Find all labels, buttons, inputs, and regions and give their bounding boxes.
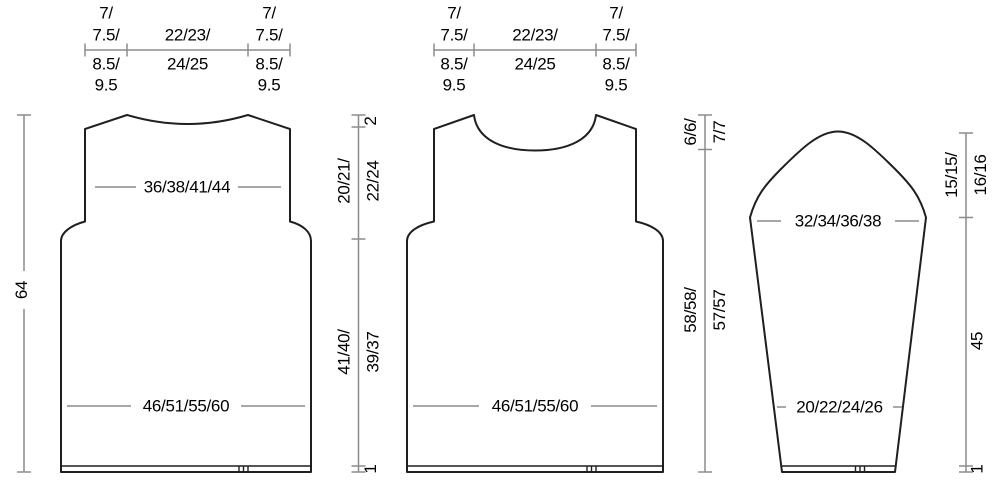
back-hem-width-label: 46/51/55/60 <box>143 397 230 416</box>
back-vertical-measure: 2 20/21/ 22/24 41/40/ 39/37 1 <box>335 115 383 474</box>
sleeve-cap-height-label-row2: 16/16 <box>971 154 990 195</box>
back-body-height-label-row2: 39/37 <box>364 331 383 372</box>
back-piece-outline <box>61 115 311 472</box>
front-piece-outline <box>407 115 663 472</box>
back-left-shoulder-label-row3: 8.5/ <box>92 55 120 74</box>
back-right-shoulder-label-row2: 7.5/ <box>255 26 283 45</box>
back-neck-width-label-row1: 22/23/ <box>165 26 211 45</box>
sleeve-cuff-rib-marks <box>856 467 865 472</box>
front-left-shoulder-label-row3: 8.5/ <box>440 55 468 74</box>
front-neck-depth-label-row2: 7/7 <box>710 121 729 144</box>
back-chest-measure: 36/38/41/44 <box>95 178 281 197</box>
back-left-shoulder-label-row1: 7/ <box>99 4 113 23</box>
sleeve-cuff-band-label: 1 <box>968 464 987 473</box>
front-right-shoulder-label-row1: 7/ <box>609 4 623 23</box>
back-armhole-label-row1: 20/21/ <box>335 158 354 204</box>
back-chest-width-label: 36/38/41/44 <box>144 178 231 197</box>
front-right-shoulder-label-row2: 7.5/ <box>602 26 630 45</box>
front-hem-width-label: 46/51/55/60 <box>492 397 579 416</box>
front-neck-width-label-row2: 24/25 <box>514 55 555 74</box>
back-right-shoulder-label-row4: 9.5 <box>258 76 281 95</box>
front-right-shoulder-label-row3: 8.5/ <box>602 55 630 74</box>
sleeve-piece: 32/34/36/38 20/22/24/26 15/15/ 16/16 45 … <box>750 132 990 474</box>
front-neck-depth-label-row1: 6/6/ <box>681 118 700 146</box>
sleeve-cap-height-label-row1: 15/15/ <box>942 152 961 198</box>
front-hem-measure: 46/51/55/60 <box>413 397 657 416</box>
front-top-measure-bar: 7/ 7.5/ 8.5/ 9.5 22/23/ 24/25 7/ 7.5/ 8.… <box>434 4 636 95</box>
front-left-shoulder-label-row2: 7.5/ <box>440 26 468 45</box>
front-neck-width-label-row1: 22/23/ <box>512 26 558 45</box>
back-right-shoulder-label-row1: 7/ <box>262 4 276 23</box>
schematic-canvas: 7/ 7.5/ 8.5/ 9.5 22/23/ 24/25 7/ 7.5/ 8.… <box>0 0 1000 491</box>
front-side-height-label-row1: 58/58/ <box>681 287 700 333</box>
back-hem-measure: 46/51/55/60 <box>67 397 305 416</box>
back-armhole-label-row2: 22/24 <box>364 160 383 201</box>
back-hem-band-label: 1 <box>361 464 380 473</box>
back-height-measure: 64 <box>12 115 31 472</box>
sleeve-upper-width-measure: 32/34/36/38 <box>757 212 919 231</box>
front-left-shoulder-label-row4: 9.5 <box>443 76 466 95</box>
back-hem-rib-marks <box>239 467 248 472</box>
back-top-measure-bar: 7/ 7.5/ 8.5/ 9.5 22/23/ 24/25 7/ 7.5/ 8.… <box>85 4 290 95</box>
sleeve-cuff-width-measure: 20/22/24/26 <box>777 398 902 417</box>
sleeve-cuff-width-label: 20/22/24/26 <box>796 398 883 417</box>
front-vertical-measure: 6/6/ 7/7 58/58/ 57/57 <box>681 115 729 472</box>
back-right-shoulder-label-row3: 8.5/ <box>255 55 283 74</box>
back-piece: 7/ 7.5/ 8.5/ 9.5 22/23/ 24/25 7/ 7.5/ 8.… <box>12 4 383 474</box>
sleeve-upper-width-label: 32/34/36/38 <box>795 212 882 231</box>
back-left-shoulder-label-row2: 7.5/ <box>92 26 120 45</box>
front-piece: 7/ 7.5/ 8.5/ 9.5 22/23/ 24/25 7/ 7.5/ 8.… <box>407 4 729 473</box>
back-neck-width-label-row2: 24/25 <box>167 55 208 74</box>
sleeve-vertical-measure: 15/15/ 16/16 45 1 <box>942 133 990 474</box>
back-body-height-label-row1: 41/40/ <box>335 329 354 375</box>
back-neck-depth-label: 2 <box>361 116 380 125</box>
back-total-height-label: 64 <box>12 281 31 299</box>
sleeve-outline <box>750 132 926 473</box>
front-side-height-label-row2: 57/57 <box>710 289 729 330</box>
knitting-pattern-schematic: 7/ 7.5/ 8.5/ 9.5 22/23/ 24/25 7/ 7.5/ 8.… <box>0 0 1000 491</box>
sleeve-length-label: 45 <box>968 332 987 350</box>
front-right-shoulder-label-row4: 9.5 <box>605 76 628 95</box>
back-left-shoulder-label-row4: 9.5 <box>95 76 118 95</box>
front-hem-rib-marks <box>587 467 596 472</box>
front-left-shoulder-label-row1: 7/ <box>447 4 461 23</box>
